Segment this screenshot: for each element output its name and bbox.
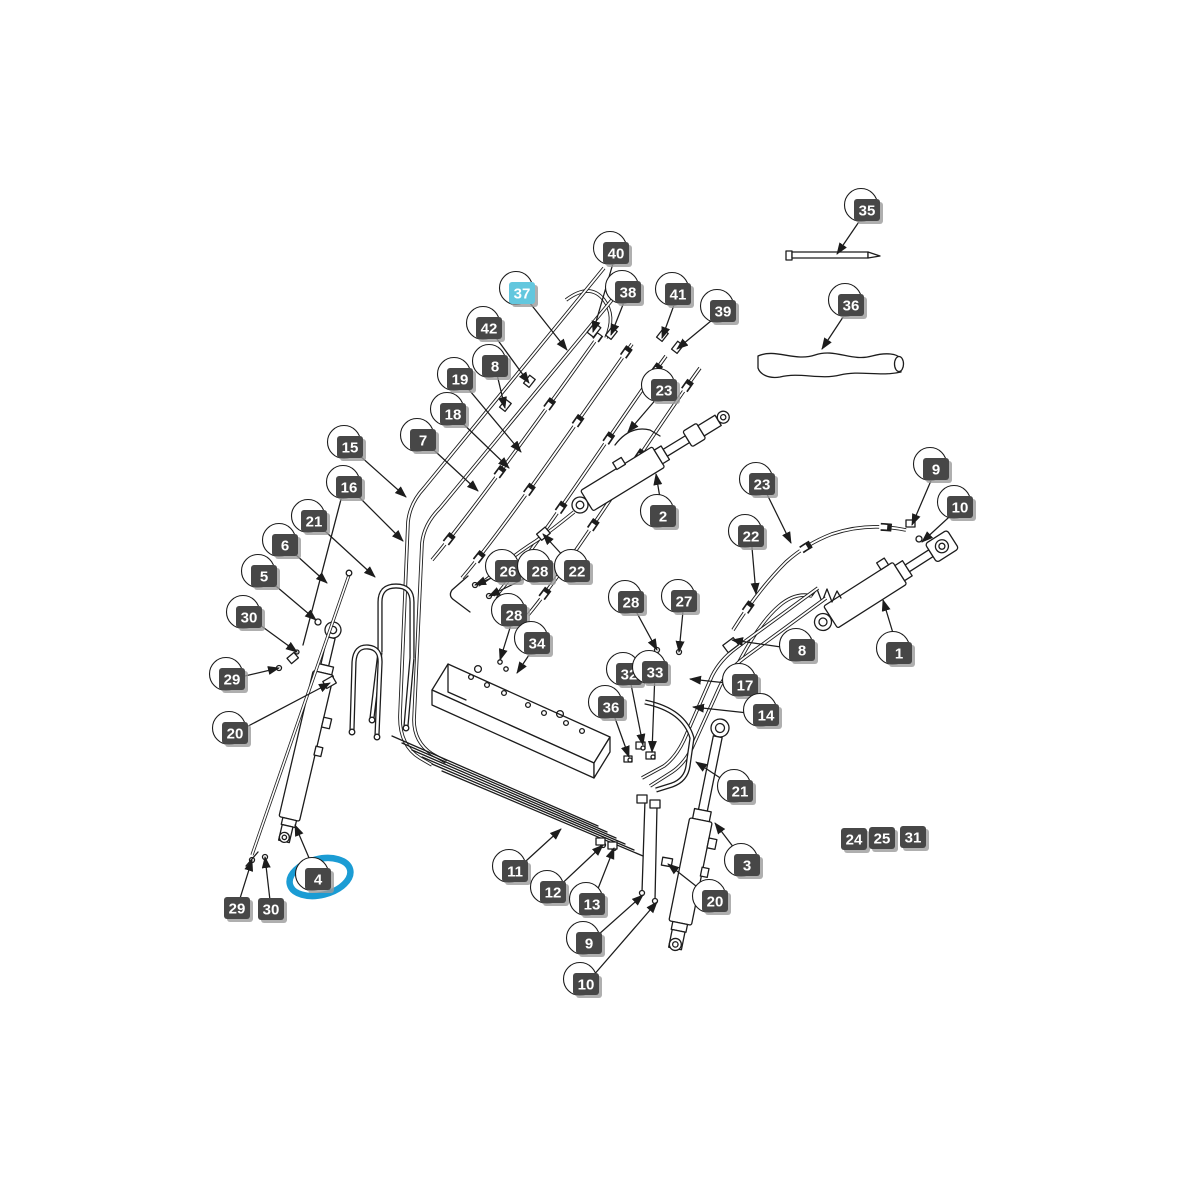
callout-10-28[interactable]: 10	[938, 486, 977, 522]
callout-41-3[interactable]: 41	[656, 273, 695, 309]
callout-16-12[interactable]: 16	[327, 466, 366, 502]
callout-number: 36	[603, 700, 620, 717]
callout-number: 27	[676, 594, 693, 611]
callout-18-8[interactable]: 18	[431, 393, 470, 429]
callout-number: 14	[758, 708, 775, 725]
callout-number: 30	[241, 610, 258, 627]
callout-35-13[interactable]: 35	[845, 189, 884, 225]
callout-number: 21	[306, 514, 323, 531]
callout-36-14[interactable]: 36	[829, 284, 868, 320]
callout-number: 19	[452, 372, 469, 389]
callout-number: 10	[578, 977, 595, 994]
callout-number: 35	[859, 203, 876, 220]
callout-40-0[interactable]: 40	[594, 232, 633, 268]
callout-number: 8	[491, 359, 499, 376]
callout-number: 9	[932, 462, 940, 479]
callout-15-11[interactable]: 15	[328, 426, 367, 462]
callout-6-16[interactable]: 6	[263, 524, 302, 560]
sleeve-36	[758, 353, 904, 377]
callout-number: 18	[445, 407, 462, 424]
callout-number: 20	[227, 726, 244, 743]
callout-number: 23	[754, 477, 771, 494]
callout-number: 5	[260, 569, 268, 586]
callout-number: 41	[670, 287, 687, 304]
callout-number: 40	[608, 246, 625, 263]
callout-number: 25	[874, 831, 891, 848]
callout-10-50[interactable]: 10	[564, 963, 603, 999]
callout-14-39[interactable]: 14	[744, 694, 783, 730]
callout-30-18[interactable]: 30	[227, 596, 266, 632]
parts-diagram-page: 4037384139428191823715163536216530292022…	[0, 0, 1200, 1200]
callout-29-52[interactable]: 29	[224, 897, 253, 922]
callout-36-37[interactable]: 36	[589, 686, 628, 722]
callout-8-29[interactable]: 8	[780, 629, 819, 665]
callout-24-43[interactable]: 24	[841, 828, 870, 853]
callout-number: 8	[798, 643, 806, 660]
callout-number: 36	[843, 298, 860, 315]
callout-29-19[interactable]: 29	[210, 658, 249, 694]
callout-27-34[interactable]: 27	[662, 580, 701, 616]
callout-number: 29	[224, 672, 241, 689]
callout-number: 39	[715, 304, 732, 321]
callout-9-27[interactable]: 9	[914, 448, 953, 484]
callout-number: 31	[905, 830, 922, 847]
callout-21-40[interactable]: 21	[718, 770, 757, 806]
callout-number: 38	[620, 285, 637, 302]
callout-number: 3	[743, 858, 751, 875]
callout-number: 24	[846, 832, 863, 849]
callout-number: 23	[656, 383, 673, 400]
callout-number: 2	[659, 509, 667, 526]
cylinder-1	[805, 522, 960, 638]
callout-number: 37	[514, 286, 531, 303]
callout-20-42[interactable]: 20	[693, 880, 732, 916]
callout-number: 22	[743, 529, 760, 546]
callout-21-15[interactable]: 21	[292, 500, 331, 536]
callout-number: 28	[623, 595, 640, 612]
callout-9-49[interactable]: 9	[567, 922, 606, 958]
callout-34-32[interactable]: 34	[515, 622, 554, 658]
callout-28-33[interactable]: 28	[609, 581, 648, 617]
callout-1-30[interactable]: 1	[877, 632, 916, 668]
callout-number: 15	[342, 440, 359, 457]
callout-number: 26	[500, 564, 517, 581]
callout-number: 17	[737, 678, 754, 695]
callout-7-10[interactable]: 7	[401, 419, 440, 455]
callout-number: 34	[529, 636, 546, 653]
callout-number: 20	[707, 894, 724, 911]
callout-number: 28	[532, 564, 549, 581]
callout-number: 11	[507, 864, 523, 881]
callout-number: 9	[585, 936, 593, 953]
callout-2-21[interactable]: 2	[641, 495, 680, 531]
callout-37-1[interactable]: 37	[500, 272, 539, 308]
callout-31-45[interactable]: 31	[900, 826, 929, 851]
callout-number: 1	[895, 646, 903, 663]
callout-number: 4	[314, 872, 323, 889]
callout-20-20[interactable]: 20	[213, 712, 252, 748]
pin-35	[786, 251, 880, 260]
callout-number: 28	[506, 608, 523, 625]
callout-25-44[interactable]: 25	[869, 827, 898, 852]
callout-number: 13	[584, 897, 601, 914]
callout-number: 10	[952, 500, 969, 517]
callout-number: 21	[732, 784, 749, 801]
callout-number: 12	[545, 885, 562, 902]
callout-number: 29	[229, 901, 246, 918]
callout-22-26[interactable]: 22	[729, 515, 768, 551]
callout-23-9[interactable]: 23	[642, 369, 681, 405]
mounting-plate	[432, 664, 610, 778]
callout-number: 7	[419, 433, 427, 450]
callout-30-53[interactable]: 30	[258, 898, 287, 923]
callout-number: 30	[263, 902, 280, 919]
callout-number: 16	[341, 480, 358, 497]
callout-42-5[interactable]: 42	[467, 307, 506, 343]
callout-3-41[interactable]: 3	[725, 844, 764, 880]
callout-number: 22	[569, 564, 586, 581]
callout-12-47[interactable]: 12	[531, 871, 570, 907]
callout-5-17[interactable]: 5	[242, 555, 281, 591]
callout-39-4[interactable]: 39	[701, 290, 740, 326]
callout-13-48[interactable]: 13	[570, 883, 609, 919]
callout-23-25[interactable]: 23	[740, 463, 779, 499]
callout-4-51[interactable]: 4	[286, 852, 355, 902]
callout-19-7[interactable]: 19	[438, 358, 477, 394]
callout-number: 33	[647, 665, 664, 682]
cylinder-4	[273, 620, 353, 847]
parts-diagram-canvas: 4037384139428191823715163536216530292022…	[0, 0, 1200, 1200]
callout-number: 42	[481, 321, 498, 338]
callout-22-24[interactable]: 22	[555, 550, 594, 586]
callout-11-46[interactable]: 11	[493, 850, 532, 886]
callout-number: 6	[281, 538, 289, 555]
